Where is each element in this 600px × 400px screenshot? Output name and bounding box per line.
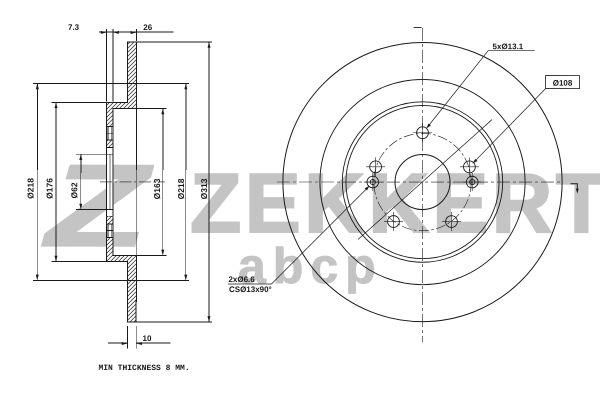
svg-text:Ø108: Ø108 xyxy=(553,79,573,88)
svg-text:Ø176: Ø176 xyxy=(45,178,55,199)
svg-text:Z: Z xyxy=(42,140,155,271)
svg-text:ZEKKERT: ZEKKERT xyxy=(190,156,600,250)
svg-text:2xØ6.6: 2xØ6.6 xyxy=(228,275,255,284)
svg-text:Ø163: Ø163 xyxy=(152,178,162,199)
svg-text:10: 10 xyxy=(142,334,151,343)
svg-text:Ø313: Ø313 xyxy=(199,178,209,199)
svg-text:Ø218: Ø218 xyxy=(176,178,186,199)
svg-text:7.3: 7.3 xyxy=(68,23,80,32)
svg-text:26: 26 xyxy=(143,23,152,32)
svg-text:CSØ13x90°: CSØ13x90° xyxy=(229,285,272,294)
svg-text:Ø218: Ø218 xyxy=(26,178,36,199)
svg-text:5xØ13.1: 5xØ13.1 xyxy=(493,42,524,51)
svg-text:Ø62: Ø62 xyxy=(69,182,79,198)
svg-text:MIN THICKNESS 8 MM.: MIN THICKNESS 8 MM. xyxy=(98,364,189,373)
